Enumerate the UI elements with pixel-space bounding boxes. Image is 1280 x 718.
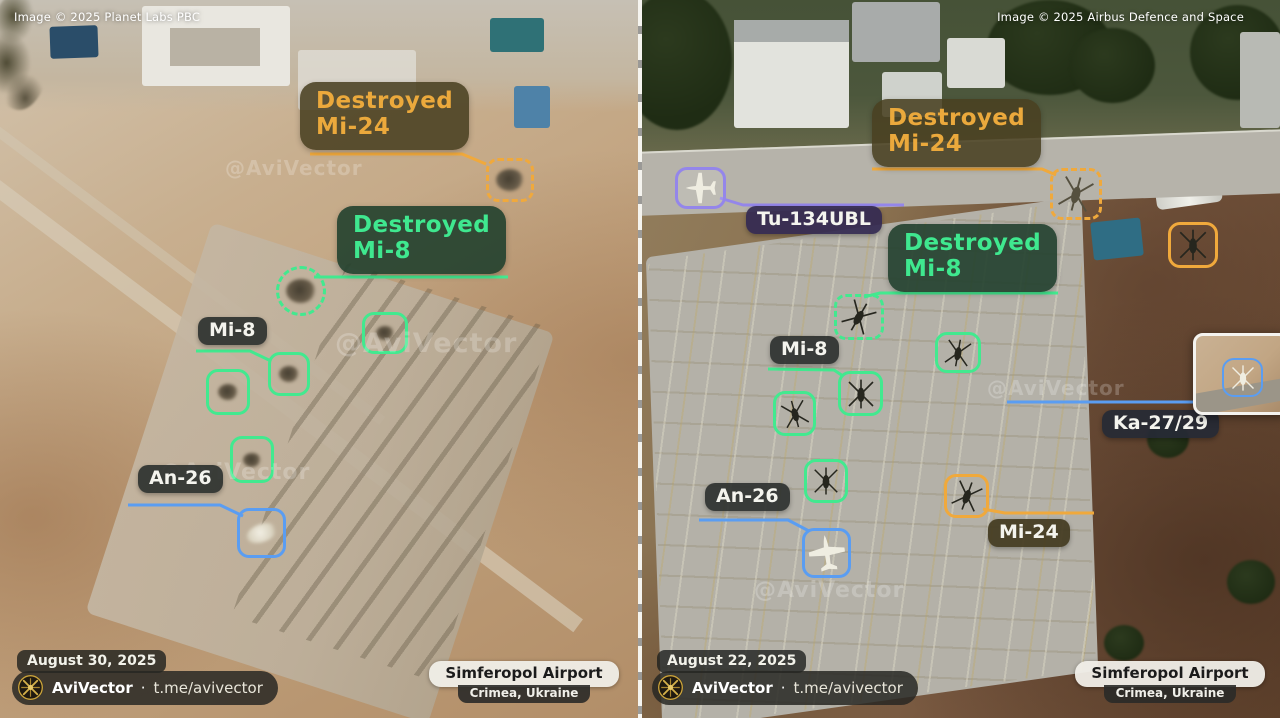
imagery-credit: Image © 2025 Airbus Defence and Space — [997, 10, 1244, 24]
tree-cluster — [1104, 625, 1144, 661]
label-text: Mi-8 — [904, 257, 1041, 283]
label-an26: An-26 — [138, 465, 223, 493]
ka27-helicopter — [1229, 364, 1257, 392]
location-badge: Simferopol Airport Crimea, Ukraine — [424, 661, 624, 703]
date-badge: August 22, 2025 — [657, 650, 806, 673]
label-text: Mi-24 — [316, 115, 453, 141]
label-text: Mi-8 — [353, 239, 490, 265]
building-courtyard — [170, 28, 260, 66]
building-blue-roof — [514, 86, 550, 128]
helicopter — [845, 378, 877, 410]
location-region: Crimea, Ukraine — [458, 685, 591, 703]
avivector-logo-icon — [17, 674, 44, 701]
label-mi8: Mi-8 — [198, 317, 267, 345]
location-badge: Simferopol Airport Crimea, Ukraine — [1070, 661, 1270, 703]
helicopter — [218, 384, 238, 400]
watermark: @AviVector — [225, 156, 363, 180]
panel-before: Destroyed Mi-24 Destroyed Mi-8 Mi-8 An-2… — [0, 0, 638, 718]
destroyed-helicopter-wreck — [286, 279, 316, 303]
watermark: @AviVector — [987, 376, 1125, 400]
brand-link: t.me/avivector — [794, 679, 903, 697]
building-blue-roof — [1090, 217, 1144, 260]
label-destroyed-mi8: Destroyed Mi-8 — [337, 206, 506, 274]
brand-name: AviVector — [52, 679, 133, 697]
building-roof-edge — [734, 20, 849, 42]
label-mi24: Mi-24 — [988, 519, 1070, 547]
helicopter — [941, 335, 976, 370]
tu134ubl-box — [675, 167, 726, 209]
mi24-box — [1168, 222, 1218, 268]
ka2729-box — [1222, 358, 1263, 397]
destroyed-helicopter-wreck — [836, 294, 882, 340]
helicopter — [776, 395, 813, 432]
label-an26: An-26 — [705, 483, 790, 511]
helicopter — [811, 466, 841, 496]
brand-link: t.me/avivector — [154, 679, 263, 697]
mi24-box — [944, 474, 989, 518]
brand-separator: · — [141, 679, 146, 697]
location-region: Crimea, Ukraine — [1104, 685, 1237, 703]
building — [947, 38, 1005, 88]
an26-aircraft — [243, 519, 279, 547]
an26-box — [802, 528, 851, 578]
label-text: Mi-24 — [888, 132, 1025, 158]
building-teal-roof — [490, 18, 544, 52]
destroyed-mi24-box — [486, 158, 534, 202]
helicopter — [1176, 228, 1210, 262]
building — [1240, 32, 1280, 128]
mi8-box — [804, 459, 848, 503]
label-text: Destroyed — [888, 106, 1025, 132]
destroyed-mi8-box — [276, 266, 326, 316]
mi8-box — [838, 371, 883, 416]
building — [734, 20, 849, 128]
tree-cluster — [1070, 28, 1155, 103]
watermark: @AviVector — [754, 578, 904, 603]
label-destroyed-mi8: Destroyed Mi-8 — [888, 224, 1057, 292]
destroyed-helicopter-wreck — [1053, 171, 1100, 218]
imagery-credit: Image © 2025 Planet Labs PBC — [14, 10, 200, 24]
location-name: Simferopol Airport — [429, 661, 618, 687]
label-text: Destroyed — [353, 213, 490, 239]
label-mi8: Mi-8 — [770, 336, 839, 364]
building-blue-roof — [49, 25, 98, 59]
watermark: @AviVector — [335, 328, 517, 359]
date-badge: August 30, 2025 — [17, 650, 166, 673]
location-name: Simferopol Airport — [1075, 661, 1264, 687]
label-destroyed-mi24: Destroyed Mi-24 — [872, 99, 1041, 167]
an26-aircraft — [804, 530, 849, 575]
helicopter — [946, 475, 987, 516]
label-destroyed-mi24: Destroyed Mi-24 — [300, 82, 469, 150]
brand-badge: AviVector · t.me/avivector — [12, 671, 278, 705]
mi8-box — [773, 391, 816, 436]
brand-separator: · — [781, 679, 786, 697]
label-text: Destroyed — [904, 231, 1041, 257]
building — [852, 2, 940, 62]
an26-box — [237, 508, 286, 558]
panel-divider — [638, 0, 642, 718]
avivector-logo-icon — [657, 674, 684, 701]
tu134-aircraft — [684, 171, 718, 205]
brand-name: AviVector — [692, 679, 773, 697]
label-text: Destroyed — [316, 89, 453, 115]
comparison-image: Destroyed Mi-24 Destroyed Mi-8 Mi-8 An-2… — [0, 0, 1280, 718]
mi8-box — [935, 332, 981, 373]
panel-after: Destroyed Mi-24 Destroyed Mi-8 Tu-134UBL… — [642, 0, 1280, 718]
ka2729-inset — [1193, 333, 1280, 415]
mi8-box — [206, 369, 250, 415]
destroyed-mi24-box — [1050, 168, 1102, 220]
tree-cluster — [1227, 560, 1275, 604]
destroyed-helicopter-wreck — [496, 169, 524, 191]
helicopter — [279, 366, 299, 382]
destroyed-mi8-box — [834, 294, 884, 340]
brand-badge: AviVector · t.me/avivector — [652, 671, 918, 705]
mi8-box — [268, 352, 310, 396]
label-tu134ubl: Tu-134UBL — [746, 206, 882, 234]
